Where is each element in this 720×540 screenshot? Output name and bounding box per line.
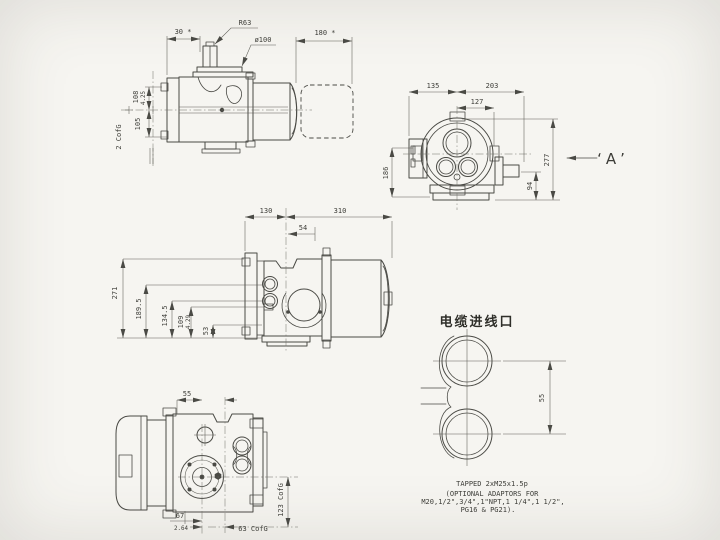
drawing-canvas: 30 * R63 ø100 180 * 108 4.25 105 2 — [0, 0, 720, 540]
tapped-note-line3: M20,1/2",3/4",1"NPT,1 1/4",1 1/2", — [421, 498, 564, 506]
dim-310: 310 — [286, 207, 392, 258]
dim-180-label: 180 * — [314, 29, 335, 37]
cable-entry-title: 电缆进线口 — [439, 314, 514, 330]
view-front-elevation: 130 310 54 271 189.5 134.5 109 4.29 — [111, 207, 392, 352]
dim-r63-label: R63 — [239, 19, 252, 27]
view-a-callout: ‘A’ — [567, 150, 629, 168]
dim-67-inch-label: 2.64 — [174, 526, 188, 532]
front-left-dims: 271 189.5 134.5 109 4.29 53 — [111, 259, 264, 338]
dim-dia100-label: ø100 — [255, 36, 272, 44]
dim-53-label: 53 — [202, 327, 210, 335]
dim-105-label: 105 — [134, 118, 142, 131]
dim-94: 94 — [495, 172, 560, 200]
dim-2-cofg-label: 2 CofG — [115, 124, 123, 149]
dim-130: 130 — [245, 207, 286, 251]
dim-108-inch-label: 4.25 — [141, 91, 147, 105]
side-body-outline — [121, 42, 353, 166]
dim-108-label: 108 — [132, 91, 140, 104]
tapped-note-line4: PG16 & PG21). — [461, 506, 516, 514]
dim-54-label: 54 — [299, 224, 307, 232]
plan-body-outline — [116, 397, 298, 535]
view-end-a: 135 203 127 186 94 277 ‘A’ — [382, 82, 629, 210]
dim-135: 135 — [409, 82, 457, 136]
dim-67: 67 2.64 — [170, 511, 202, 532]
dim-130-label: 130 — [260, 207, 273, 215]
cable-entry-detail: 电缆进线口 55 TAPPED 2xM25x1.5p (OPTIONAL ADA… — [421, 314, 566, 514]
dim-r63: R63 — [215, 19, 258, 44]
dim-310-label: 310 — [334, 207, 347, 215]
dim-30-label: 30 * — [175, 28, 192, 36]
dim-55-plan: 55 — [177, 390, 237, 414]
hex-bolt — [215, 472, 222, 480]
dim-109-inch-label: 4.29 — [186, 315, 192, 329]
dim-55-cable-label: 55 — [538, 394, 546, 402]
view-plan: 55 123 CofG 67 2.64 63 CofG — [116, 390, 298, 535]
view-a-label: ‘A’ — [597, 150, 629, 168]
dim-54: 54 — [288, 224, 315, 241]
handwheel-alt-position-dashed — [301, 85, 353, 138]
dim-277-label: 277 — [543, 154, 551, 167]
handwheel-boss — [288, 289, 320, 321]
dim-55-cable: 55 — [503, 361, 566, 434]
dim-271-label: 271 — [111, 287, 119, 300]
dim-67-label: 67 — [176, 512, 184, 520]
view-side-elevation: 30 * R63 ø100 180 * 108 4.25 105 2 — [115, 19, 353, 166]
dim-189-5-label: 189.5 — [135, 298, 143, 319]
dim-105: 105 — [134, 110, 167, 137]
cable-entry-outline — [421, 329, 501, 466]
dim-94-label: 94 — [526, 182, 534, 190]
dim-55-plan-label: 55 — [183, 390, 191, 398]
dim-135-label: 135 — [427, 82, 440, 90]
tapped-note-line1: TAPPED 2xM25x1.5p — [456, 480, 528, 488]
tapped-note-line2: (OPTIONAL ADAPTORS FOR — [446, 490, 540, 498]
dim-203: 203 — [457, 82, 524, 162]
dim-dia100: ø100 — [242, 36, 276, 66]
dim-108: 108 4.25 — [132, 87, 162, 110]
dim-63-cofg-label: 63 CofG — [238, 525, 268, 533]
dim-123-cofg-label: 123 CofG — [277, 483, 285, 517]
dim-127: 127 — [457, 98, 494, 146]
dim-277: 277 — [462, 119, 558, 200]
dim-203-label: 203 — [486, 82, 499, 90]
dim-186-label: 186 — [382, 167, 390, 180]
dim-180: 180 * — [296, 29, 352, 84]
dim-123-cofg: 123 CofG — [277, 477, 288, 527]
dim-63-cofg: 63 CofG — [190, 525, 268, 533]
drawing-sheet: 30 * R63 ø100 180 * 108 4.25 105 2 — [0, 0, 720, 540]
dim-134-5-label: 134.5 — [161, 305, 169, 326]
dim-30: 30 * — [167, 28, 200, 75]
dim-109-label: 109 — [177, 316, 185, 329]
dim-127-label: 127 — [471, 98, 484, 106]
front-body-outline — [242, 208, 392, 352]
tapped-note: TAPPED 2xM25x1.5p (OPTIONAL ADAPTORS FOR… — [421, 480, 564, 514]
end-body-outline — [403, 106, 532, 210]
terminal-box — [409, 139, 427, 178]
